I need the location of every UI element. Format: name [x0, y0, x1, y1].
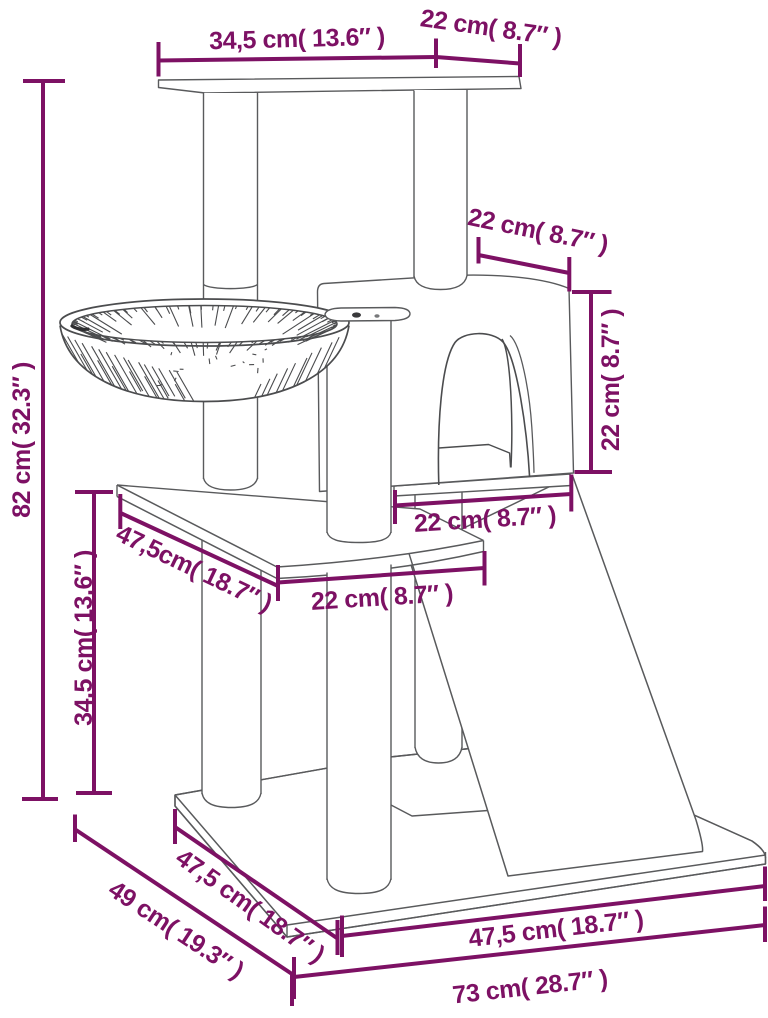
svg-text:82 cm( 32.3″ ): 82 cm( 32.3″ )	[8, 362, 36, 518]
svg-text:34,5 cm( 13.6″ ): 34,5 cm( 13.6″ )	[209, 23, 386, 56]
svg-text:34,5 cm( 13.6″ ): 34,5 cm( 13.6″ )	[70, 550, 98, 726]
svg-text:22 cm( 8.7″ ): 22 cm( 8.7″ )	[597, 309, 625, 451]
